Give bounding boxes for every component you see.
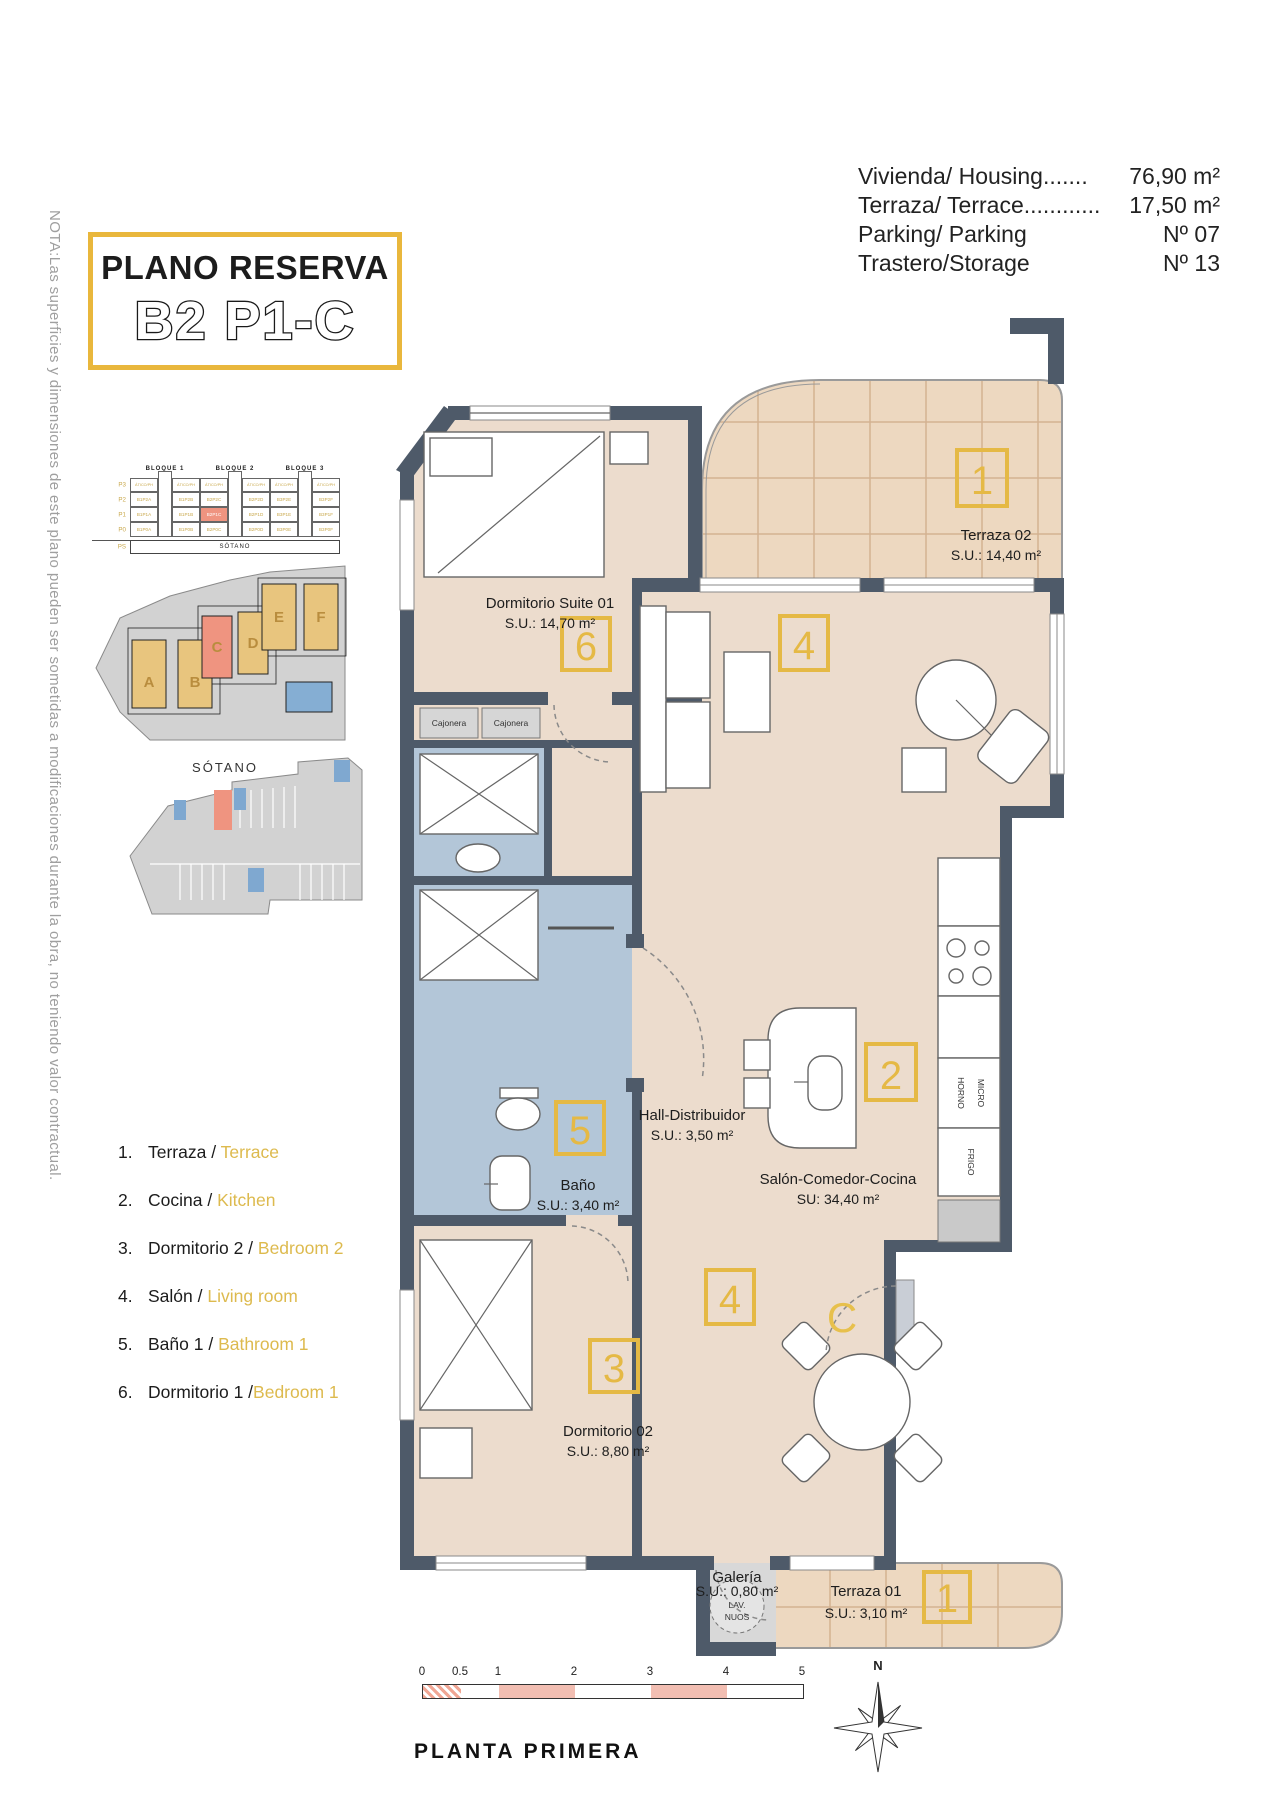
info-value: Nº 07	[1163, 221, 1220, 248]
keyplan-unit: B1P1A	[130, 507, 158, 522]
legend-item: 6.Dormitorio 1 /Bedroom 1	[118, 1382, 378, 1403]
legend-item-spanish: Baño 1	[148, 1334, 203, 1354]
keyplan-unit: ÁTICO/PH	[200, 478, 228, 492]
keyplan-unit: ÁTICO/PH	[130, 478, 158, 492]
legend-item-number: 3.	[118, 1238, 148, 1259]
site-plan: A B C D E F	[90, 555, 360, 755]
terrace01	[770, 1560, 1065, 1655]
keyplan-tower	[298, 471, 312, 537]
floor-plan: 1 6 4 2 5 3 4 1 C Terraza 02 S.U.: 14,40…	[390, 300, 1080, 1670]
compass-rose: N	[832, 1656, 924, 1780]
salon-name: Salón-Comedor-Cocina	[760, 1171, 917, 1188]
coffee-table	[724, 652, 770, 732]
badge-bathroom: 5	[569, 1109, 591, 1153]
legend-item-spanish: Dormitorio 2	[148, 1238, 243, 1258]
legend-item: 5.Baño 1 / Bathroom 1	[118, 1334, 378, 1355]
site-pool	[286, 682, 332, 712]
scale-tick: 3	[647, 1666, 653, 1678]
basement-highlight-cell	[214, 790, 232, 830]
keyplan-unit: B2P2D	[242, 492, 270, 507]
floor-label: P3	[92, 482, 126, 489]
site-letter-f: F	[316, 609, 325, 626]
keyplan-highlight-unit: B2P1C	[200, 507, 228, 522]
info-value: 17,50 m²	[1129, 192, 1220, 219]
keyplan-unit: B1P2A	[130, 492, 158, 507]
info-row: Trastero/Storage Nº 13	[858, 250, 1220, 279]
terrace02-name: Terraza 02	[961, 527, 1032, 544]
galeria-area: S.U.: 0,80 m²	[696, 1583, 779, 1599]
legend-item-english: Bedroom 2	[258, 1238, 344, 1258]
side-table	[902, 748, 946, 792]
cajonera-label-left: Cajonera	[432, 718, 467, 728]
keyplan-unit: B3P2F	[312, 492, 340, 507]
unit-code: B2 P1-C	[99, 287, 391, 359]
keyplan-unit: B1P1B	[172, 507, 200, 522]
scale-tick: 0	[419, 1666, 425, 1678]
scale-bar: 00.512345	[412, 1666, 812, 1730]
keyplan-unit: ÁTICO/PH	[242, 478, 270, 492]
scale-tick: 5	[799, 1666, 805, 1678]
frigo-label: FRIGO	[966, 1149, 976, 1176]
legend-item-spanish: Cocina	[148, 1190, 202, 1210]
bathroom-area: S.U.: 3,40 m²	[537, 1197, 620, 1213]
legend-item-separator: /	[206, 1142, 220, 1162]
cajonera-label-right: Cajonera	[494, 718, 529, 728]
site-letter-d: D	[248, 635, 259, 652]
horno-label: HORNO	[956, 1077, 966, 1109]
legend-item-english: Terrace	[221, 1142, 279, 1162]
badge-bedroom2: 3	[603, 1347, 625, 1391]
floor-caption: PLANTA PRIMERA	[414, 1740, 642, 1764]
keyplan-unit: B1P0B	[172, 522, 200, 537]
legend-item-separator: /	[203, 1334, 218, 1354]
terrace01-area: S.U.: 3,10 m²	[825, 1605, 908, 1621]
info-dots: .......	[1043, 163, 1088, 190]
keyplan-sotano-bar: SÓTANO	[130, 540, 340, 554]
info-value: 76,90 m²	[1129, 163, 1220, 190]
keyplan-unit: B1P0A	[130, 522, 158, 537]
site-letter-c: C	[212, 639, 223, 656]
legend-item-number: 2.	[118, 1190, 148, 1211]
suite-name: Dormitorio Suite 01	[486, 595, 614, 612]
entrance-letter: C	[827, 1294, 857, 1341]
info-value: Nº 13	[1163, 250, 1220, 277]
keyplan-tower	[228, 471, 242, 537]
scale-tick: 0.5	[452, 1666, 468, 1678]
basement-ground	[130, 758, 362, 914]
salon-area: SU: 34,40 m²	[797, 1191, 880, 1207]
info-label: Terraza/ Terrace	[858, 192, 1024, 219]
legend-list: 1.Terraza / Terrace2.Cocina / Kitchen3.D…	[118, 1142, 378, 1430]
keyplan-unit: B2P0D	[242, 522, 270, 537]
keyplan-unit: B3P1E	[270, 507, 298, 522]
site-letter-b: B	[190, 674, 201, 691]
info-label: Vivienda/ Housing	[858, 163, 1043, 190]
floor-label: P2	[92, 496, 126, 503]
badge-suite: 6	[575, 625, 597, 669]
keyplan-unit: B2P2C	[200, 492, 228, 507]
keyplan-unit: B3P0F	[312, 522, 340, 537]
legend-item-english: Living room	[207, 1286, 297, 1306]
floor-label: P0	[92, 526, 126, 533]
info-row: Parking/ Parking Nº 07	[858, 221, 1220, 250]
title-box: PLANO RESERVA B2 P1-C	[88, 232, 402, 370]
legend-item: 1.Terraza / Terrace	[118, 1142, 378, 1163]
basement-plan: SÓTANO	[105, 748, 370, 923]
legend-item-separator: /	[243, 1382, 253, 1402]
keyplan-unit: B3P2E	[270, 492, 298, 507]
legend-item: 3.Dormitorio 2 / Bedroom 2	[118, 1238, 378, 1259]
keyplan-unit: B2P0C	[200, 522, 228, 537]
legend-item-english: Bedroom 1	[253, 1382, 339, 1402]
scale-tick: 4	[723, 1666, 729, 1678]
site-letter-a: A	[144, 674, 155, 691]
info-label: Trastero/Storage	[858, 250, 1030, 277]
legend-item-number: 6.	[118, 1382, 148, 1403]
keyplan-unit: ÁTICO/PH	[312, 478, 340, 492]
lav-line2: NUOS	[725, 1612, 750, 1622]
hall-name: Hall-Distribuidor	[639, 1107, 746, 1124]
keyplan-tower	[158, 471, 172, 537]
legend-item: 4.Salón / Living room	[118, 1286, 378, 1307]
disclaimer-note: NOTA:Las superficies y dimensiones de es…	[46, 210, 63, 1310]
badge-living: 4	[793, 624, 815, 668]
legend-item-spanish: Terraza	[148, 1142, 206, 1162]
bedroom2-name: Dormitorio 02	[563, 1423, 653, 1440]
legend-item-english: Bathroom 1	[218, 1334, 308, 1354]
legend-item-spanish: Salón	[148, 1286, 193, 1306]
terrace02-area: S.U.: 14,40 m²	[951, 547, 1042, 563]
info-label: Parking/ Parking	[858, 221, 1027, 248]
hall-area: S.U.: 3,50 m²	[651, 1127, 734, 1143]
floor-label: PS	[92, 544, 126, 551]
site-letter-e: E	[274, 609, 284, 626]
floor-label: P1	[92, 511, 126, 518]
info-dots: ............	[1024, 192, 1101, 219]
legend-item-spanish: Dormitorio 1	[148, 1382, 243, 1402]
legend-item: 2.Cocina / Kitchen	[118, 1190, 378, 1211]
unit-code-text: B2 P1-C	[134, 291, 355, 351]
legend-item-number: 5.	[118, 1334, 148, 1355]
legend-item-english: Kitchen	[217, 1190, 275, 1210]
keyplan-unit: B1P2B	[172, 492, 200, 507]
info-row: Terraza/ Terrace............ 17,50 m²	[858, 192, 1220, 221]
info-block: Vivienda/ Housing....... 76,90 m² Terraz…	[858, 163, 1220, 279]
keyplan-unit: ÁTICO/PH	[270, 478, 298, 492]
legend-item-separator: /	[243, 1238, 258, 1258]
lav-line1: LAV.	[728, 1600, 745, 1610]
scale-bar-strip	[422, 1684, 804, 1699]
legend-item-number: 4.	[118, 1286, 148, 1307]
badge-dining: 4	[719, 1278, 741, 1322]
compass-north-label: N	[873, 1658, 882, 1673]
bedroom2-area: S.U.: 8,80 m²	[567, 1443, 650, 1459]
info-row: Vivienda/ Housing....... 76,90 m²	[858, 163, 1220, 192]
keyplan-unit: B3P1F	[312, 507, 340, 522]
legend-item-separator: /	[193, 1286, 208, 1306]
keyplan-unit: ÁTICO/PH	[172, 478, 200, 492]
keyplan-ground-line	[92, 540, 130, 541]
micro-label: MICRO	[976, 1079, 986, 1108]
suite-area: S.U.: 14,70 m²	[505, 615, 596, 631]
basement-label: SÓTANO	[192, 760, 258, 775]
scale-tick: 2	[571, 1666, 577, 1678]
badge-terrace02: 1	[971, 459, 993, 503]
terrace01-name: Terraza 01	[831, 1583, 902, 1600]
legend-item-number: 1.	[118, 1142, 148, 1163]
kitchen-appliances	[938, 858, 1000, 1242]
plan-title: PLANO RESERVA	[93, 249, 397, 287]
scale-tick: 1	[495, 1666, 501, 1678]
badge-terrace01: 1	[936, 1577, 958, 1621]
keyplan-unit: B2P1D	[242, 507, 270, 522]
bathroom-name: Baño	[560, 1177, 595, 1194]
badge-kitchen: 2	[880, 1054, 902, 1098]
legend-item-separator: /	[202, 1190, 217, 1210]
keyplan-unit: B3P0E	[270, 522, 298, 537]
